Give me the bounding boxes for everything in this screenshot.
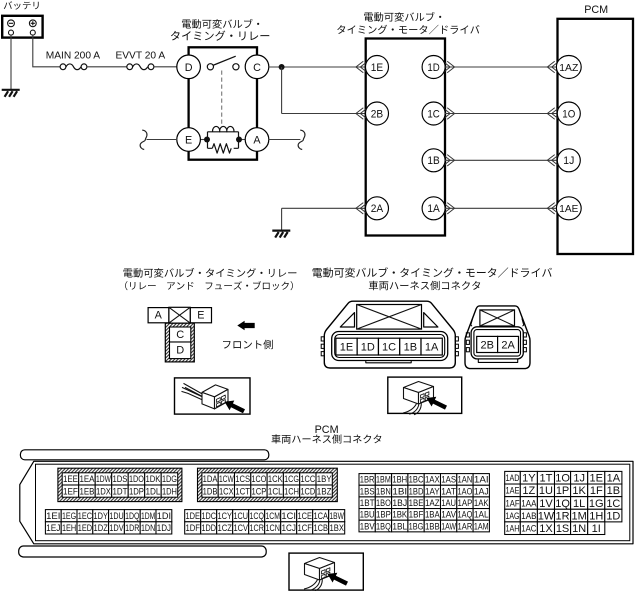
svg-text:1CW: 1CW [219,474,234,484]
svg-text:1DX: 1DX [96,486,111,496]
svg-text:C: C [253,62,261,74]
svg-text:1AM: 1AM [474,521,489,531]
svg-text:A: A [253,135,261,147]
svg-text:2B: 2B [371,108,383,120]
svg-text:1CX: 1CX [219,486,234,496]
svg-text:1CO: 1CO [252,474,267,484]
svg-text:1CV: 1CV [233,523,248,533]
svg-text:1DE: 1DE [185,511,200,521]
svg-text:1BJ: 1BJ [392,498,407,508]
svg-text:1C: 1C [427,108,440,120]
svg-text:1Z: 1Z [522,485,535,497]
svg-text:1A: 1A [427,203,440,215]
svg-text:1AZ: 1AZ [425,498,440,508]
svg-text:1A: 1A [607,473,621,485]
svg-text:2A: 2A [501,340,515,352]
svg-text:1BW: 1BW [329,511,344,521]
svg-text:1DN: 1DN [141,523,155,533]
svg-text:1AB: 1AB [521,511,536,521]
svg-text:1AU: 1AU [441,498,456,508]
svg-text:1K: 1K [572,485,586,497]
svg-text:1BK: 1BK [392,510,407,520]
svg-text:2A: 2A [371,203,384,215]
svg-text:1CC: 1CC [300,474,315,484]
svg-text:1EA: 1EA [79,474,95,484]
svg-text:1V: 1V [539,498,553,510]
svg-text:1AT: 1AT [441,486,456,496]
svg-text:1BU: 1BU [360,510,375,520]
svg-text:1CK: 1CK [268,474,283,484]
svg-text:D: D [176,345,184,357]
svg-text:1J: 1J [573,473,585,485]
svg-text:1DA: 1DA [203,474,218,484]
svg-text:1CB: 1CB [313,523,328,533]
svg-text:1BL: 1BL [392,521,407,531]
svg-text:1DT: 1DT [112,486,127,496]
svg-text:1E: 1E [590,473,603,485]
svg-text:1E: 1E [371,62,383,74]
svg-text:1X: 1X [539,523,553,535]
svg-text:1CN: 1CN [265,523,280,533]
svg-text:1AC: 1AC [521,523,537,533]
svg-text:1S: 1S [556,523,569,535]
svg-text:1CI: 1CI [281,511,296,521]
svg-text:1AS: 1AS [441,475,456,485]
svg-text:1BC: 1BC [409,475,424,485]
svg-text:1DO: 1DO [129,474,144,484]
svg-text:1DG: 1DG [162,474,177,484]
svg-text:1CE: 1CE [297,511,312,521]
svg-text:1BI: 1BI [392,486,407,496]
svg-text:1DL: 1DL [145,486,160,496]
svg-text:1ED: 1ED [78,523,93,533]
svg-text:1N: 1N [572,523,586,535]
svg-text:1P: 1P [556,485,569,497]
svg-text:1BB: 1BB [425,521,440,531]
svg-text:2B: 2B [480,340,493,352]
svg-text:1BQ: 1BQ [376,521,391,531]
svg-text:1EH: 1EH [62,523,76,533]
svg-text:1AR: 1AR [458,521,473,531]
svg-text:1CA: 1CA [313,511,328,521]
svg-text:1AF: 1AF [506,498,520,508]
svg-text:1CS: 1CS [235,474,250,484]
svg-text:1DW: 1DW [96,474,111,484]
svg-text:1BE: 1BE [409,498,424,508]
svg-text:1EF: 1EF [63,486,78,496]
svg-text:1DQ: 1DQ [125,511,139,521]
svg-text:1AK: 1AK [474,498,489,508]
svg-text:C: C [176,329,184,341]
svg-text:1EG: 1EG [62,511,76,521]
svg-text:1AE: 1AE [506,486,520,496]
svg-text:1BF: 1BF [409,510,424,520]
svg-text:1B: 1B [404,342,417,354]
svg-text:1C: 1C [382,342,396,354]
svg-text:1BY: 1BY [317,474,332,484]
svg-text:1DV: 1DV [109,523,124,533]
svg-text:1CP: 1CP [252,486,267,496]
svg-text:1AH: 1AH [506,523,520,533]
svg-text:1CM: 1CM [265,511,280,521]
svg-text:1CJ: 1CJ [281,523,296,533]
svg-text:1EI: 1EI [46,511,60,521]
svg-text:1R: 1R [556,510,570,522]
svg-text:1AQ: 1AQ [458,510,473,520]
svg-text:1DF: 1DF [185,523,200,533]
svg-text:1A: 1A [425,342,439,354]
svg-text:1EC: 1EC [78,511,93,521]
svg-text:1CD: 1CD [300,486,315,496]
svg-text:1BD: 1BD [409,486,424,496]
svg-text:1BV: 1BV [360,521,375,531]
svg-text:MAIN 200 A: MAIN 200 A [46,51,101,62]
svg-text:1BZ: 1BZ [317,486,332,496]
svg-text:1DU: 1DU [109,511,123,521]
svg-text:1B: 1B [427,155,439,167]
svg-text:1DI: 1DI [157,511,171,521]
svg-text:1BN: 1BN [376,486,391,496]
svg-text:1AL: 1AL [474,510,489,520]
svg-text:1J: 1J [563,155,574,167]
svg-text:1BG: 1BG [409,521,424,531]
svg-text:1CL: 1CL [268,486,283,496]
svg-text:1O: 1O [555,473,570,485]
svg-text:1DZ: 1DZ [94,523,109,533]
svg-text:1Y: 1Y [522,473,536,485]
svg-text:1AA: 1AA [521,498,536,508]
svg-text:1G: 1G [589,498,604,510]
svg-text:1DM: 1DM [141,511,155,521]
svg-text:1AY: 1AY [425,486,440,496]
svg-text:1D: 1D [361,342,375,354]
svg-text:1H: 1H [589,510,603,522]
svg-text:D: D [185,62,193,74]
svg-text:1CF: 1CF [297,523,312,533]
svg-text:1L: 1L [573,498,585,510]
svg-text:1AW: 1AW [441,521,456,531]
svg-text:1BH: 1BH [392,475,407,485]
svg-text:PCM: PCM [584,4,608,16]
svg-text:1C: 1C [606,498,620,510]
svg-text:1CY: 1CY [217,511,232,521]
svg-text:1D: 1D [606,510,620,522]
svg-text:1B: 1B [607,485,620,497]
svg-text:1CT: 1CT [235,486,250,496]
svg-text:1DD: 1DD [201,523,216,533]
svg-text:1F: 1F [590,485,603,497]
svg-text:1AO: 1AO [458,486,473,496]
svg-text:1T: 1T [540,473,553,485]
svg-text:1DP: 1DP [129,486,144,496]
svg-text:1DK: 1DK [145,474,161,484]
svg-text:1BM: 1BM [376,475,391,485]
svg-text:1BS: 1BS [360,486,375,496]
svg-text:1AI: 1AI [474,475,489,485]
svg-text:1DJ: 1DJ [157,523,171,533]
svg-text:1BX: 1BX [329,523,344,533]
svg-text:1DR: 1DR [125,523,140,533]
svg-text:1AE: 1AE [559,204,578,215]
svg-text:1DB: 1DB [203,486,218,496]
svg-text:1DC: 1DC [201,511,216,521]
svg-text:E: E [197,310,204,322]
svg-text:1CZ: 1CZ [217,523,232,533]
svg-text:E: E [185,135,192,147]
svg-text:1O: 1O [562,108,575,120]
svg-text:1AG: 1AG [506,511,520,521]
svg-text:1EJ: 1EJ [46,523,60,533]
svg-text:1AX: 1AX [425,475,440,485]
svg-text:1E: 1E [340,342,353,354]
svg-text:1AN: 1AN [458,475,473,485]
svg-text:1DH: 1DH [162,486,177,496]
svg-text:PCM: PCM [315,424,339,436]
svg-text:1DS: 1DS [112,474,127,484]
svg-text:1CH: 1CH [284,486,299,496]
svg-text:1BA: 1BA [425,510,440,520]
svg-text:1EB: 1EB [79,486,94,496]
svg-text:1D: 1D [427,62,440,74]
svg-text:A: A [155,310,163,322]
svg-text:1CG: 1CG [284,474,299,484]
svg-text:1BO: 1BO [376,498,391,508]
svg-text:1Q: 1Q [555,498,570,510]
svg-text:1AD: 1AD [506,473,520,483]
svg-text:1CR: 1CR [249,523,264,533]
svg-text:1BR: 1BR [360,475,375,485]
svg-text:1I: 1I [592,523,601,535]
svg-text:1CQ: 1CQ [249,511,264,521]
svg-text:1CU: 1CU [233,511,248,521]
svg-text:EVVT 20 A: EVVT 20 A [115,51,165,62]
svg-text:1EE: 1EE [63,474,78,484]
svg-text:1AP: 1AP [458,498,473,508]
svg-text:1AJ: 1AJ [474,486,489,496]
svg-text:1M: 1M [572,510,587,522]
svg-text:1BP: 1BP [376,510,391,520]
svg-text:1BT: 1BT [360,498,375,508]
svg-text:1DY: 1DY [94,511,108,521]
svg-text:1AV: 1AV [441,510,456,520]
svg-text:1U: 1U [539,485,553,497]
svg-text:1AZ: 1AZ [559,63,579,74]
svg-text:1W: 1W [538,510,555,522]
